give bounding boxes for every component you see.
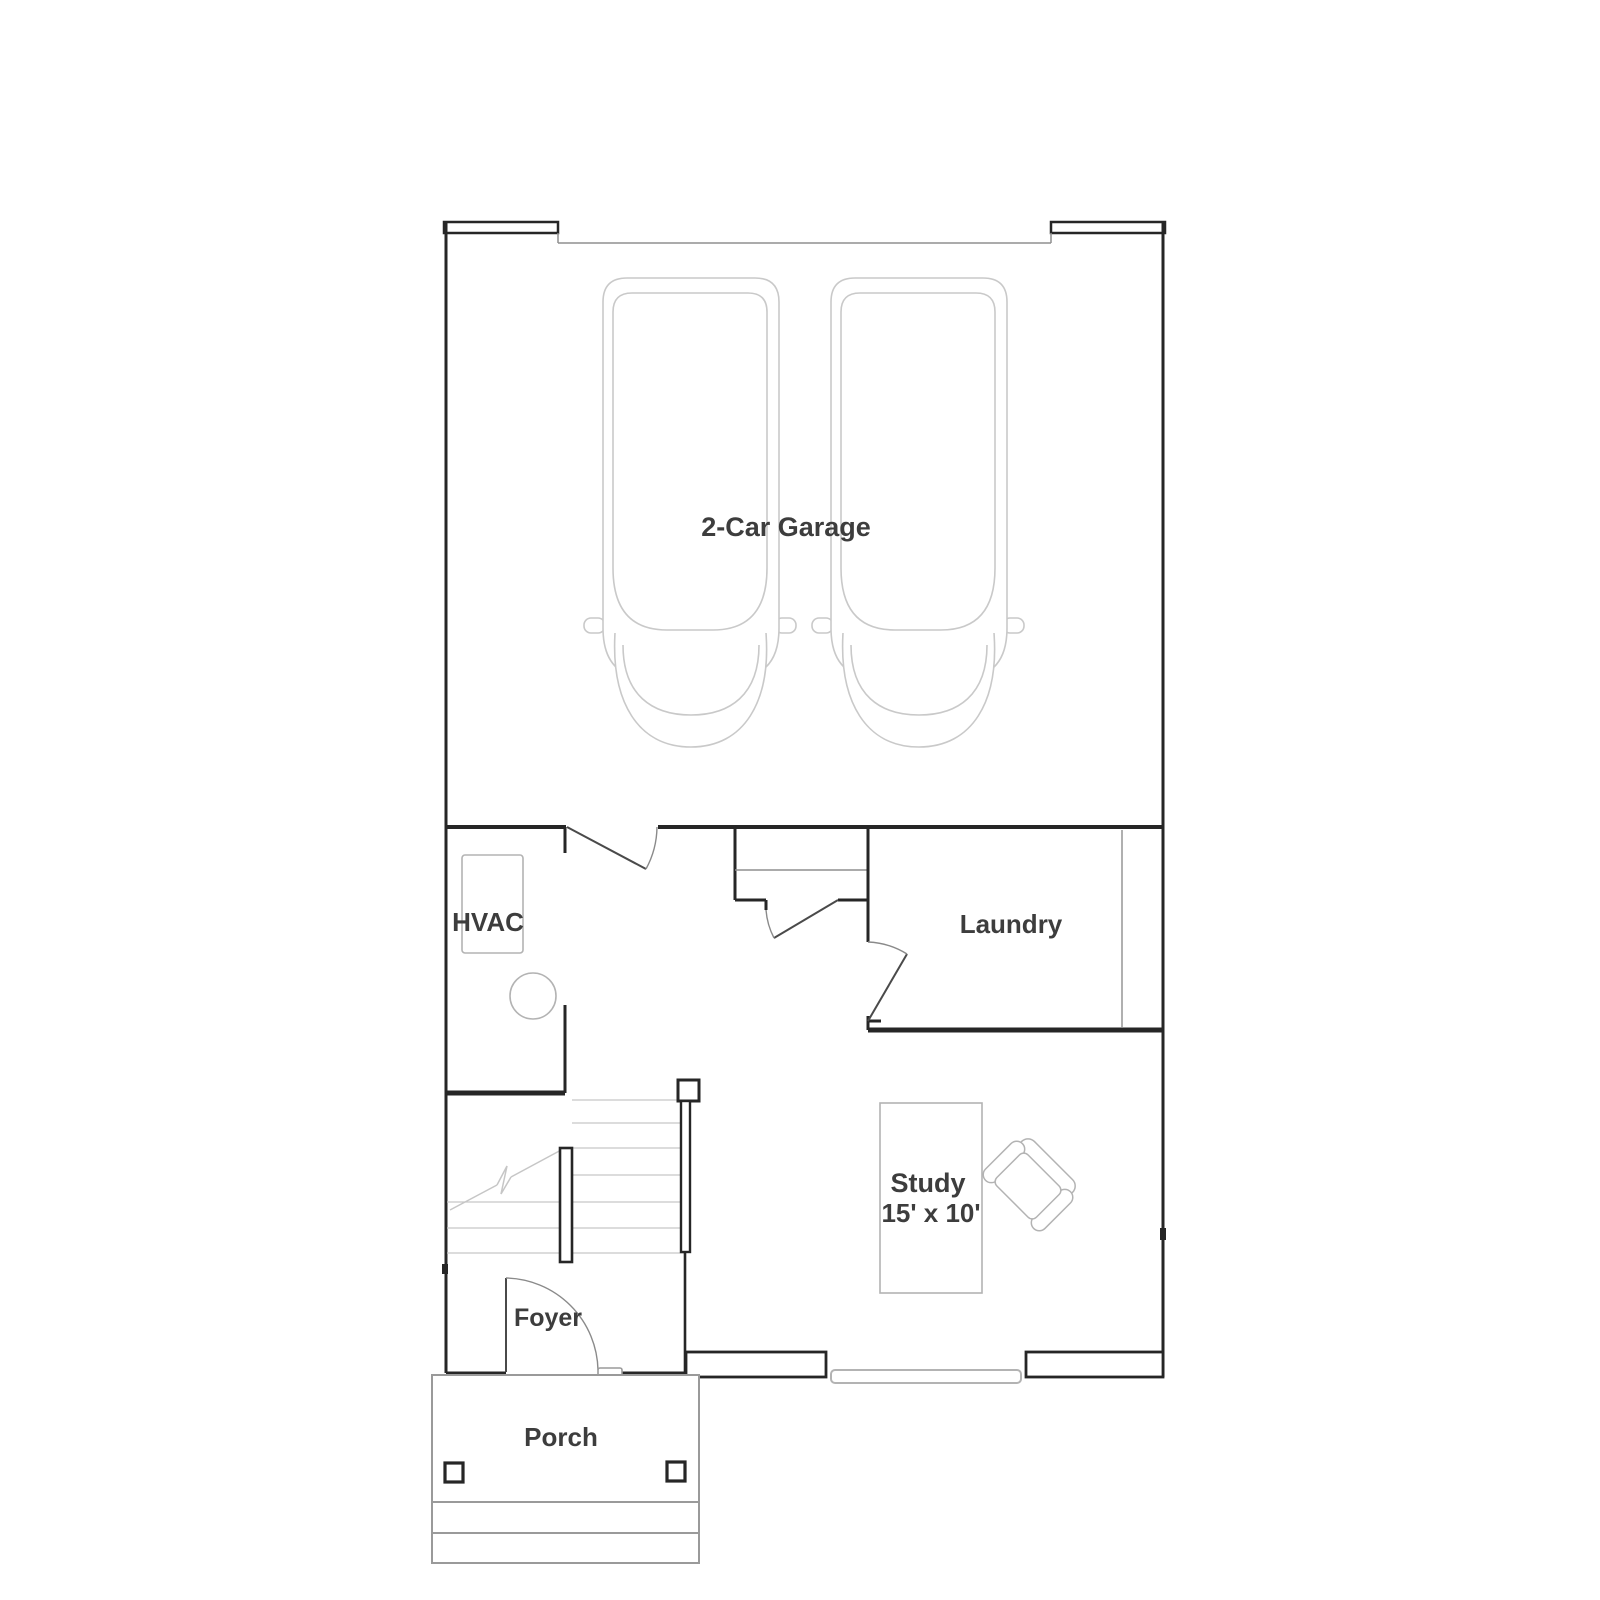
study-front-wall-left bbox=[686, 1352, 826, 1377]
porch-step-2 bbox=[432, 1533, 699, 1563]
study-chair bbox=[980, 1131, 1083, 1234]
laundry-door-leaf bbox=[868, 954, 907, 1021]
water-heater bbox=[510, 973, 556, 1019]
floor-plan-drawing: 2-Car Garage HVAC Laundry bbox=[0, 0, 1600, 1600]
stair-direction-line bbox=[450, 1149, 563, 1210]
garage-door-jambs bbox=[558, 233, 1051, 243]
room-label-study: Study bbox=[890, 1168, 965, 1198]
right-wall-joint-tick bbox=[1160, 1228, 1166, 1240]
porch-step-1 bbox=[432, 1502, 699, 1533]
garage-entry-door-leaf bbox=[567, 827, 646, 869]
laundry-room: Laundry bbox=[868, 828, 1163, 1030]
room-label-hvac: HVAC bbox=[452, 907, 524, 937]
garage-room: 2-Car Garage bbox=[444, 222, 1165, 747]
laundry-door-swing bbox=[868, 942, 907, 954]
hvac-unit bbox=[462, 855, 523, 953]
utility-area: HVAC bbox=[452, 827, 657, 1019]
study-room: Study 15' x 10' bbox=[686, 1103, 1163, 1383]
closet-door-leaf bbox=[774, 900, 838, 938]
car-mirror-left bbox=[584, 618, 605, 633]
garage-front-wall-left bbox=[444, 222, 558, 233]
left-wall-joint-tick bbox=[442, 1264, 448, 1274]
study-window bbox=[831, 1370, 1021, 1383]
stair-railing-outer bbox=[681, 1101, 690, 1252]
room-label-garage: 2-Car Garage bbox=[701, 512, 871, 542]
stair-railing-inner bbox=[560, 1148, 572, 1262]
stair-break-mark bbox=[497, 1166, 511, 1194]
hall-closet bbox=[735, 828, 868, 938]
room-label-laundry: Laundry bbox=[960, 909, 1063, 939]
porch-post-left bbox=[445, 1463, 463, 1482]
room-dims-study: 15' x 10' bbox=[881, 1198, 980, 1228]
room-label-porch: Porch bbox=[524, 1422, 598, 1452]
closet-door-swing bbox=[766, 910, 774, 938]
garage-entry-door-swing bbox=[646, 827, 657, 869]
foyer-area: Foyer bbox=[506, 1278, 622, 1381]
study-front-wall-right bbox=[1026, 1352, 1163, 1377]
porch-area: Porch bbox=[432, 1375, 699, 1563]
room-label-foyer: Foyer bbox=[514, 1304, 582, 1332]
floor-plan-canvas: 2-Car Garage HVAC Laundry bbox=[0, 0, 1600, 1600]
car-windshield bbox=[613, 293, 767, 630]
garage-front-wall-right bbox=[1051, 222, 1165, 233]
stair-newel-post bbox=[678, 1080, 699, 1101]
porch-post-right bbox=[667, 1462, 685, 1481]
